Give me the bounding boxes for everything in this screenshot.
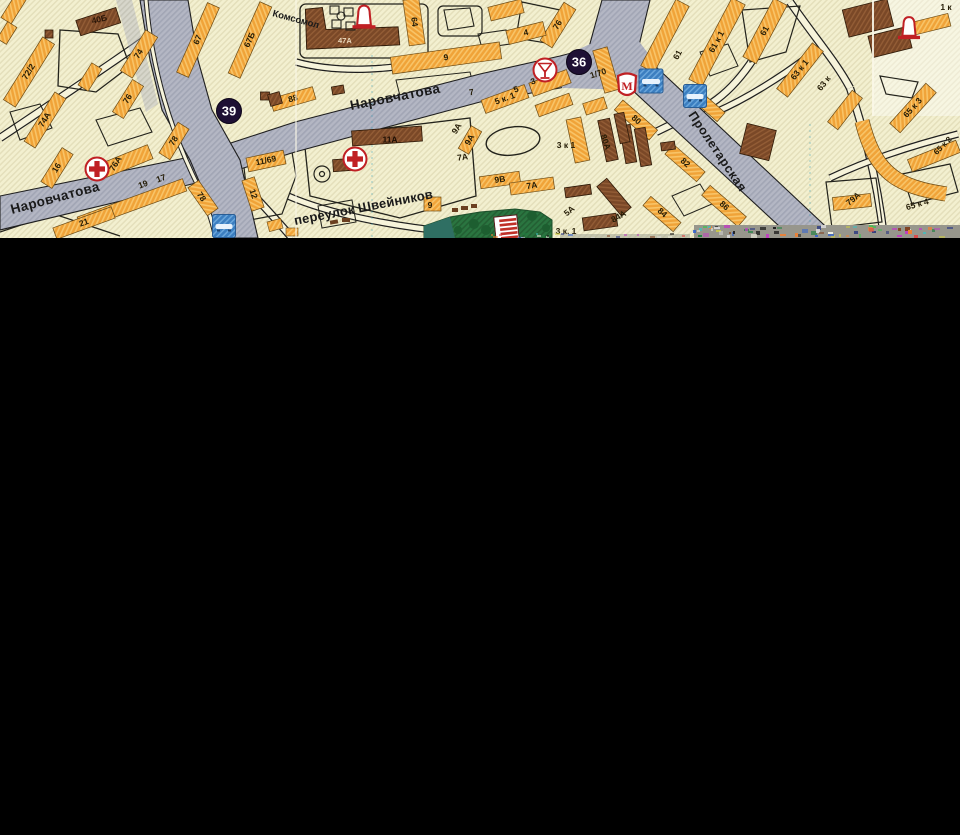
svg-text:11А: 11А [382,134,397,144]
svg-text:9: 9 [428,200,433,210]
svg-text:36: 36 [572,55,586,70]
svg-text:9В: 9В [494,174,506,185]
svg-text:47А: 47А [338,36,352,45]
svg-text:39: 39 [222,104,236,119]
svg-text:7А: 7А [457,151,469,162]
svg-text:7А: 7А [526,180,538,191]
svg-text:64: 64 [409,17,420,28]
svg-text:1 к: 1 к [940,2,952,12]
svg-text:3 к 1: 3 к 1 [557,140,576,150]
svg-text:М: М [621,79,632,93]
